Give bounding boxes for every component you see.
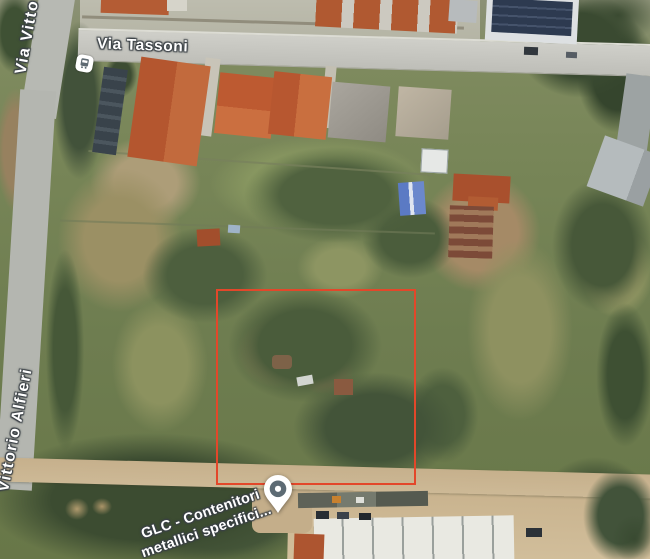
parcel-outline — [216, 289, 416, 485]
container-orange — [332, 496, 341, 503]
garden-shed-red — [197, 228, 221, 246]
solar-roof-building — [485, 0, 579, 44]
tree-canopy — [612, 515, 650, 559]
garden-beds — [448, 205, 494, 259]
warehouse-white-bottom — [314, 515, 515, 559]
car — [228, 225, 241, 234]
car — [337, 512, 349, 519]
car — [316, 511, 329, 519]
house-roof-orange — [268, 71, 332, 140]
car — [359, 513, 371, 520]
blue-tarp — [398, 181, 426, 216]
house-roof-red-bottom — [294, 533, 325, 559]
car — [526, 528, 542, 537]
building-top-white — [167, 0, 187, 11]
dry-bush — [92, 498, 112, 515]
building-top-roof — [101, 0, 170, 15]
bus-stop-icon[interactable] — [75, 54, 95, 74]
bus-glyph-icon — [77, 56, 92, 71]
tree-canopy — [578, 0, 650, 43]
container-white — [356, 497, 364, 503]
house-roof-gray — [328, 82, 391, 143]
dry-bush — [65, 498, 89, 520]
road-label-via-tassoni: Via Tassoni — [97, 35, 189, 56]
house-roof-orange — [127, 57, 210, 167]
car — [524, 47, 538, 55]
white-gazebo — [420, 148, 448, 173]
car — [566, 52, 577, 58]
house-roof-light — [395, 86, 451, 140]
satellite-map-canvas[interactable]: Via Tassoni Via Vitto Vittorio Alfieri G… — [0, 0, 650, 559]
building-small-top — [448, 0, 477, 23]
